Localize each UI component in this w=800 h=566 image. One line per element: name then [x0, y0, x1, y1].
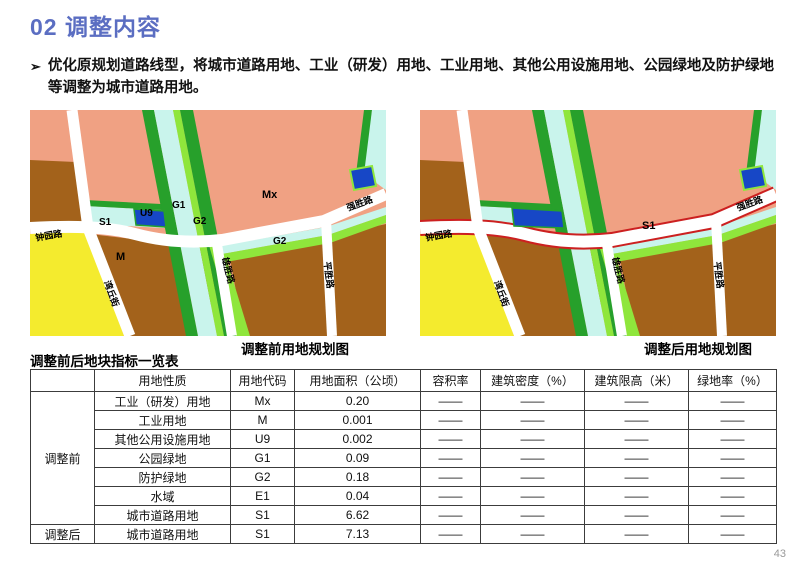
parcel-label-mx: Mx — [262, 189, 278, 201]
after-map: S1 钟园路 强胜路 雄胜路 平胜路 湾丘街 — [420, 110, 776, 336]
table-cell: —— — [585, 525, 689, 544]
col-header-land-type: 用地性质 — [95, 370, 231, 392]
parcel-label-g2b: G2 — [273, 236, 287, 247]
table-corner-cell — [31, 370, 95, 392]
table-cell: —— — [689, 525, 777, 544]
table-cell: —— — [481, 449, 585, 468]
table-row: 工业用地M0.001———————— — [31, 411, 777, 430]
table-cell: —— — [481, 506, 585, 525]
intro-paragraph: ➢ 优化原规划道路线型，将城市道路用地、工业（研发）用地、工业用地、其他公用设施… — [30, 56, 774, 100]
table-cell: 0.04 — [295, 487, 421, 506]
indicator-table: 用地性质 用地代码 用地面积（公顷） 容积率 建筑密度（%） 建筑限高（米） 绿… — [30, 369, 777, 544]
page-title: 02 调整内容 — [30, 8, 161, 42]
table-cell: 0.001 — [295, 411, 421, 430]
table-cell: 水域 — [95, 487, 231, 506]
table-cell: —— — [689, 487, 777, 506]
road-label-s1: S1 — [642, 220, 655, 232]
table-cell: 0.18 — [295, 468, 421, 487]
table-cell: —— — [481, 487, 585, 506]
table-cell: —— — [421, 392, 481, 411]
map-shapes — [420, 110, 776, 336]
table-cell: 防护绿地 — [95, 468, 231, 487]
page-number: 43 — [774, 548, 786, 560]
table-cell: —— — [421, 430, 481, 449]
col-header-far: 容积率 — [421, 370, 481, 392]
table-body: 调整前工业（研发）用地Mx0.20————————工业用地M0.001—————… — [31, 392, 777, 544]
table-row: 城市道路用地S16.62———————— — [31, 506, 777, 525]
table-cell: —— — [689, 392, 777, 411]
table-row: 公园绿地G10.09———————— — [31, 449, 777, 468]
table-row: 调整后城市道路用地S17.13———————— — [31, 525, 777, 544]
table-header-row: 用地性质 用地代码 用地面积（公顷） 容积率 建筑密度（%） 建筑限高（米） 绿… — [31, 370, 777, 392]
table-title: 调整前后地块指标一览表 — [30, 350, 179, 370]
before-map-caption: 调整前用地规划图 — [180, 338, 410, 358]
table-cell: —— — [689, 430, 777, 449]
table-cell: —— — [585, 392, 689, 411]
bullet-arrow-icon: ➢ — [30, 56, 41, 100]
table-cell: —— — [585, 468, 689, 487]
table-cell: U9 — [231, 430, 295, 449]
table-cell: —— — [421, 525, 481, 544]
parcel-label-g2: G2 — [193, 216, 207, 227]
parcel-label-m: M — [116, 251, 125, 263]
table-cell: G1 — [231, 449, 295, 468]
table-cell: 城市道路用地 — [95, 525, 231, 544]
map-parcel-blue — [512, 208, 564, 228]
col-header-land-code: 用地代码 — [231, 370, 295, 392]
table-cell: —— — [481, 392, 585, 411]
table-cell: —— — [481, 430, 585, 449]
table-cell: Mx — [231, 392, 295, 411]
table-cell: —— — [689, 411, 777, 430]
table-cell: 7.13 — [295, 525, 421, 544]
table-row: 其他公用设施用地U90.002———————— — [31, 430, 777, 449]
col-header-green-ratio: 绿地率（%） — [689, 370, 777, 392]
table-cell: —— — [481, 525, 585, 544]
table-cell: 其他公用设施用地 — [95, 430, 231, 449]
table-row: 防护绿地G20.18———————— — [31, 468, 777, 487]
table-cell: —— — [689, 506, 777, 525]
table-cell: —— — [689, 449, 777, 468]
col-header-land-area: 用地面积（公顷） — [295, 370, 421, 392]
parcel-label-u9: U9 — [140, 208, 153, 219]
before-map-svg: Mx G1 U9 G2 S1 M G2 钟园路 强胜路 雄胜路 平胜路 湾丘街 — [30, 110, 386, 336]
table-cell: —— — [421, 468, 481, 487]
after-map-caption: 调整后用地规划图 — [583, 338, 800, 358]
table-cell: 0.002 — [295, 430, 421, 449]
col-header-density: 建筑密度（%） — [481, 370, 585, 392]
table-cell: —— — [421, 449, 481, 468]
intro-text: 优化原规划道路线型，将城市道路用地、工业（研发）用地、工业用地、其他公用设施用地… — [48, 56, 774, 100]
col-header-height-limit: 建筑限高（米） — [585, 370, 689, 392]
table-cell: 城市道路用地 — [95, 506, 231, 525]
table-row: 调整前工业（研发）用地Mx0.20———————— — [31, 392, 777, 411]
row-group-label: 调整后 — [31, 525, 95, 544]
table-cell: E1 — [231, 487, 295, 506]
slide: 02 调整内容 ➢ 优化原规划道路线型，将城市道路用地、工业（研发）用地、工业用… — [0, 0, 800, 566]
table-cell: S1 — [231, 525, 295, 544]
table-cell: M — [231, 411, 295, 430]
table-cell: —— — [421, 487, 481, 506]
row-group-label: 调整前 — [31, 392, 95, 525]
table-cell: —— — [585, 449, 689, 468]
table-cell: 工业（研发）用地 — [95, 392, 231, 411]
table-cell: —— — [585, 411, 689, 430]
road-label-s1: S1 — [99, 217, 112, 228]
table-cell: S1 — [231, 506, 295, 525]
table-cell: —— — [585, 487, 689, 506]
table-cell: 工业用地 — [95, 411, 231, 430]
map-parcel-blue — [740, 166, 766, 190]
table-cell: —— — [481, 411, 585, 430]
table-cell: 0.09 — [295, 449, 421, 468]
parcel-label-g1: G1 — [172, 200, 186, 211]
table-cell: —— — [481, 468, 585, 487]
table-cell: 6.62 — [295, 506, 421, 525]
table-cell: 0.20 — [295, 392, 421, 411]
table-cell: —— — [585, 430, 689, 449]
after-map-svg: S1 钟园路 强胜路 雄胜路 平胜路 湾丘街 — [420, 110, 776, 336]
table-cell: 公园绿地 — [95, 449, 231, 468]
map-parcel-blue — [350, 166, 376, 190]
table-cell: G2 — [231, 468, 295, 487]
table-cell: —— — [585, 506, 689, 525]
table-cell: —— — [421, 506, 481, 525]
table-cell: —— — [421, 411, 481, 430]
table-row: 水域E10.04———————— — [31, 487, 777, 506]
table-cell: —— — [689, 468, 777, 487]
before-map: Mx G1 U9 G2 S1 M G2 钟园路 强胜路 雄胜路 平胜路 湾丘街 — [30, 110, 386, 336]
map-shapes — [30, 110, 386, 336]
